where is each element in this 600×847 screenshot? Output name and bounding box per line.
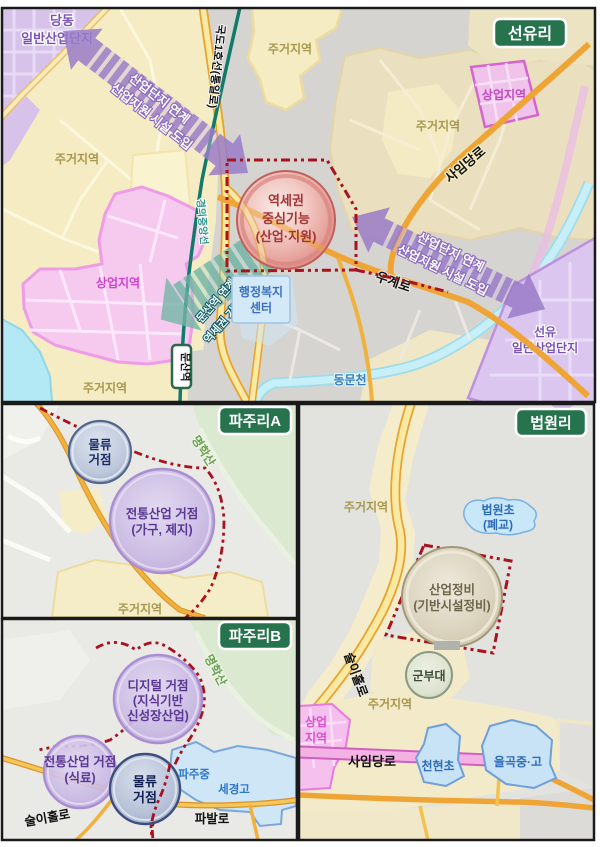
svg-text:파주리A: 파주리A [229,413,281,430]
svg-text:전통산업 거점: 전통산업 거점 [44,754,116,769]
svg-text:행정복지: 행정복지 [239,284,283,299]
svg-text:상업지역: 상업지역 [96,275,140,290]
svg-text:(기반시설정비): (기반시설정비) [413,598,490,613]
svg-text:상업지역: 상업지역 [482,87,526,102]
svg-text:파주중: 파주중 [178,767,210,781]
svg-text:신성장산업): 신성장산업) [127,708,189,723]
svg-text:법원리: 법원리 [530,415,571,432]
svg-text:중심기능: 중심기능 [262,211,310,226]
svg-text:(식료): (식료) [64,770,95,785]
svg-text:상업: 상업 [305,714,327,729]
svg-text:일반산업단지: 일반산업단지 [512,340,578,355]
svg-text:법원초: 법원초 [481,502,514,517]
svg-text:선유: 선유 [534,324,556,339]
svg-text:주거지역: 주거지역 [368,696,412,711]
svg-text:파발로: 파발로 [195,811,230,826]
svg-text:세경고: 세경고 [218,782,250,796]
svg-text:주거지역: 주거지역 [55,151,99,166]
svg-text:(가구, 제지): (가구, 제지) [131,522,192,537]
svg-text:주거지역: 주거지역 [268,41,312,56]
svg-text:(산업·지원): (산업·지원) [256,229,317,244]
svg-text:천현초: 천현초 [421,758,454,773]
svg-text:동문천: 동문천 [333,372,366,387]
svg-text:디지털 거점: 디지털 거점 [128,678,189,693]
svg-text:문산역: 문산역 [179,353,192,382]
svg-text:사임당로: 사임당로 [348,754,396,769]
svg-text:전통산업 거점: 전통산업 거점 [126,506,198,521]
svg-text:율곡중·고: 율곡중·고 [494,755,542,769]
svg-text:거점: 거점 [88,452,111,467]
svg-text:주거지역: 주거지역 [83,380,127,395]
svg-text:주거지역: 주거지역 [416,118,460,133]
svg-text:(지식기반: (지식기반 [133,693,184,708]
svg-text:주거지역: 주거지역 [344,499,388,514]
svg-text:(폐교): (폐교) [483,517,513,532]
svg-text:지역: 지역 [305,730,327,745]
svg-text:군부대: 군부대 [412,669,445,683]
svg-text:물류: 물류 [133,774,157,789]
svg-text:산업정비: 산업정비 [429,582,475,597]
svg-text:당동: 당동 [50,13,74,28]
svg-text:역세권: 역세권 [268,193,304,208]
svg-text:물류: 물류 [88,438,112,452]
svg-text:센터: 센터 [250,300,272,315]
svg-text:파주리B: 파주리B [229,628,281,645]
svg-text:거점: 거점 [133,790,157,805]
svg-text:선유리: 선유리 [508,25,552,43]
svg-text:주거지역: 주거지역 [118,601,162,616]
